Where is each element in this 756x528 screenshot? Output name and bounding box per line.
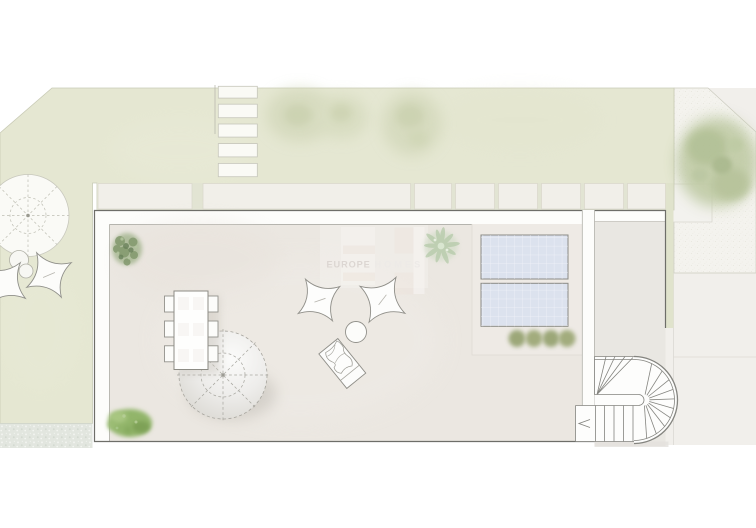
svg-text:EUROPE: EUROPE — [327, 260, 371, 270]
svg-text:HOMES: HOMES — [375, 260, 424, 270]
